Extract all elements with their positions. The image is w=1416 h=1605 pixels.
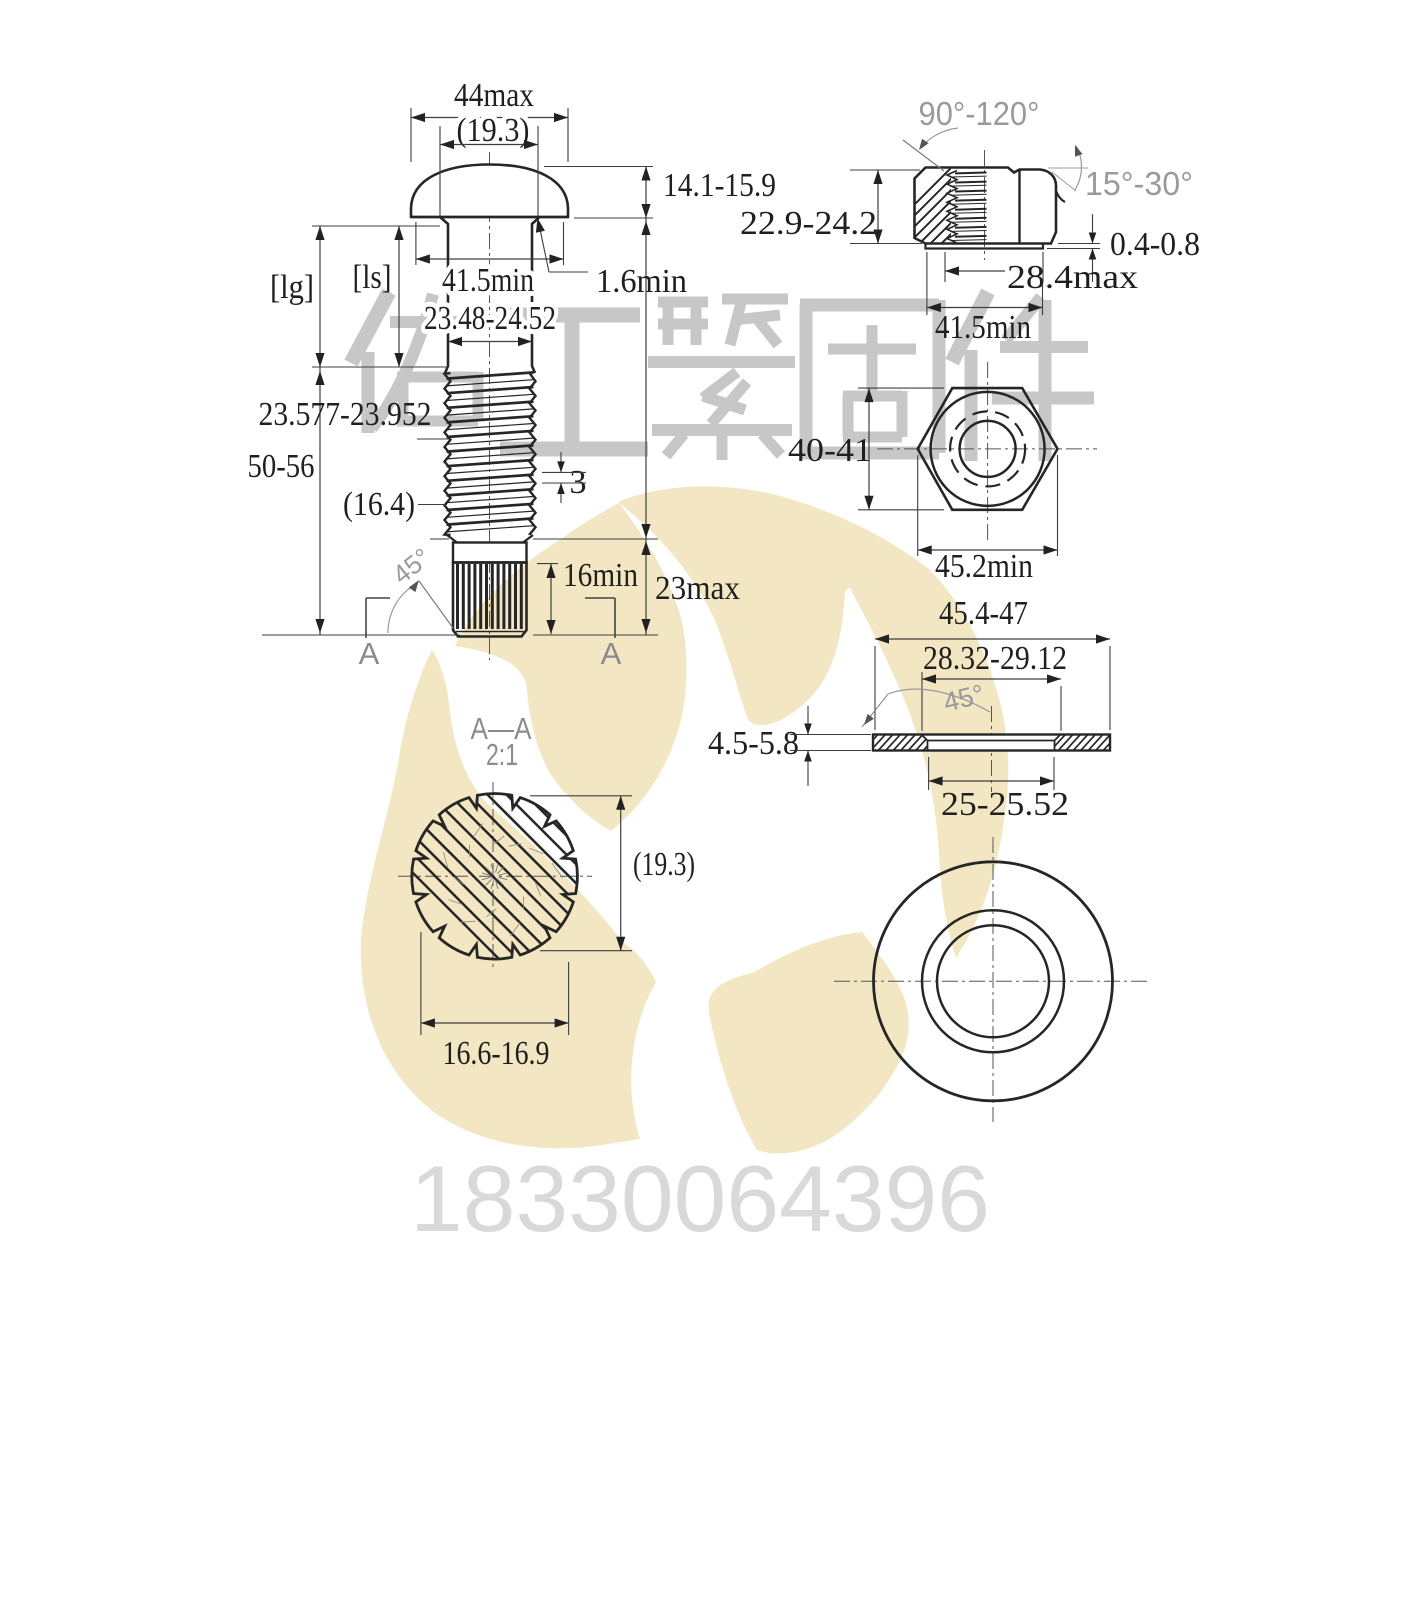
svg-text:14.1-15.9: 14.1-15.9 <box>663 167 776 204</box>
svg-text:[lg]: [lg] <box>270 269 314 306</box>
svg-text:[ls]: [ls] <box>353 259 392 296</box>
svg-text:16min: 16min <box>563 557 638 594</box>
svg-text:0.4-0.8: 0.4-0.8 <box>1110 226 1200 263</box>
svg-text:44max: 44max <box>454 77 534 114</box>
svg-text:50-56: 50-56 <box>248 448 315 485</box>
svg-text:90°-120°: 90°-120° <box>919 95 1040 132</box>
svg-text:22.9-24.2: 22.9-24.2 <box>740 205 877 242</box>
svg-text:2:1: 2:1 <box>486 737 518 772</box>
svg-text:41.5min: 41.5min <box>442 262 534 299</box>
svg-text:25-25.52: 25-25.52 <box>941 786 1069 823</box>
svg-text:41.5min: 41.5min <box>935 309 1031 346</box>
svg-text:(19.3): (19.3) <box>457 112 530 149</box>
svg-text:1.6min: 1.6min <box>596 263 687 300</box>
svg-text:28.32-29.12: 28.32-29.12 <box>923 640 1067 677</box>
svg-text:45.2min: 45.2min <box>935 548 1033 585</box>
svg-text:A: A <box>359 636 380 671</box>
svg-text:40-41: 40-41 <box>788 432 872 469</box>
svg-text:15°-30°: 15°-30° <box>1085 165 1193 202</box>
svg-text:4.5-5.8: 4.5-5.8 <box>708 725 799 762</box>
svg-text:(16.4): (16.4) <box>343 486 415 523</box>
svg-text:16.6-16.9: 16.6-16.9 <box>443 1035 550 1072</box>
svg-text:23max: 23max <box>655 570 740 607</box>
svg-text:23.48-24.52: 23.48-24.52 <box>424 300 556 337</box>
svg-text:A: A <box>601 636 622 671</box>
svg-text:18330064396: 18330064396 <box>410 1146 990 1251</box>
svg-text:(19.3): (19.3) <box>633 846 695 883</box>
svg-text:28.4max: 28.4max <box>1007 259 1138 296</box>
svg-text:45°: 45° <box>387 542 436 590</box>
svg-text:45.4-47: 45.4-47 <box>939 595 1028 632</box>
svg-text:23.577-23.952: 23.577-23.952 <box>259 396 432 433</box>
